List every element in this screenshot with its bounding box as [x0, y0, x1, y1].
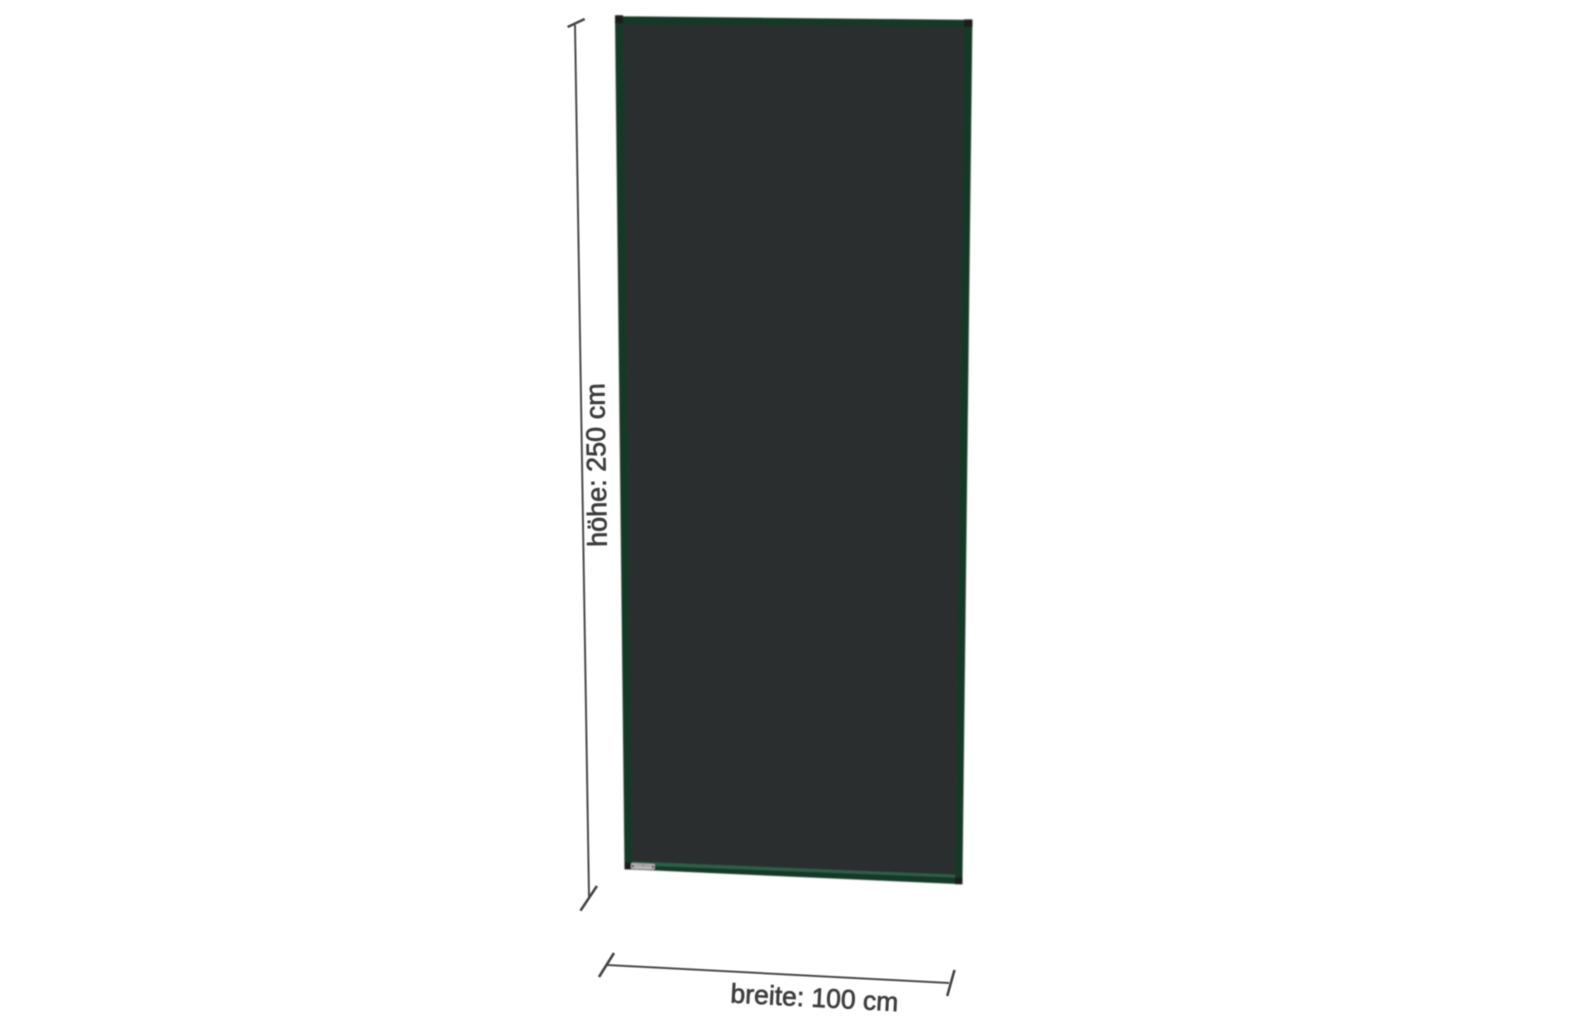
- svg-text:höhe: 250 cm: höhe: 250 cm: [580, 383, 613, 547]
